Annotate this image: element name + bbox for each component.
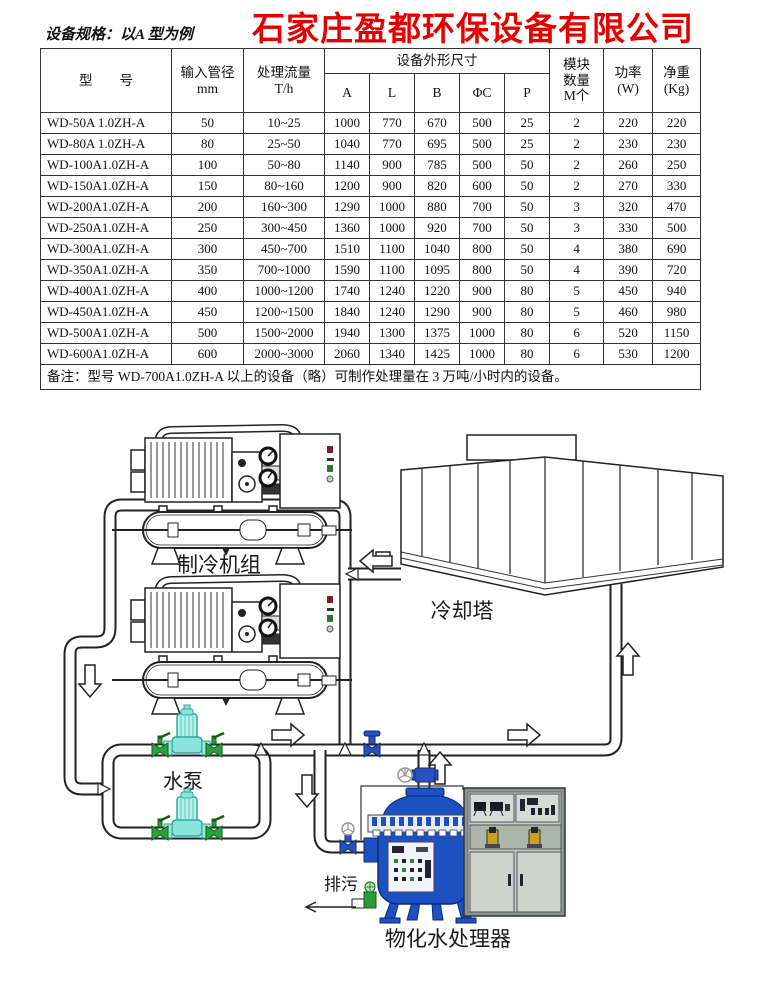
cabinet-door — [470, 852, 514, 912]
cooling-tower-top-box — [467, 435, 576, 460]
table-cell: 230 — [653, 134, 701, 155]
model-cell: WD-450A1.0ZH-A — [41, 302, 172, 323]
table-cell: 980 — [653, 302, 701, 323]
chiller-unit-2 — [112, 578, 352, 714]
table-cell: 1425 — [415, 344, 460, 365]
table-cell: 4 — [550, 239, 604, 260]
table-cell: 50~80 — [244, 155, 325, 176]
relay-device — [485, 827, 500, 848]
table-cell: 2 — [550, 155, 604, 176]
table-cell: 450 — [604, 281, 653, 302]
flow-arrow-down-icon — [79, 665, 101, 697]
table-cell: 900 — [460, 281, 505, 302]
table-cell: 300 — [172, 239, 244, 260]
col-header-A: A — [325, 74, 370, 113]
table-cell: 4 — [550, 260, 604, 281]
table-cell: 1200~1500 — [244, 302, 325, 323]
label-drain: 排污 — [324, 875, 358, 894]
table-cell: 820 — [415, 176, 460, 197]
model-cell: WD-350A1.0ZH-A — [41, 260, 172, 281]
col-header-dimensions: 设备外形尺寸 — [325, 49, 550, 74]
system-diagram: 制冷机组 冷却塔 水泵 排污 物化水处理器 — [0, 406, 763, 971]
table-cell: 330 — [604, 218, 653, 239]
table-cell: 260 — [604, 155, 653, 176]
table-cell: 500 — [460, 134, 505, 155]
table-cell: 700~1000 — [244, 260, 325, 281]
model-cell: WD-50A 1.0ZH-A — [41, 113, 172, 134]
table-cell: 1100 — [370, 239, 415, 260]
handwheel-icon — [342, 823, 354, 835]
door-handle — [520, 874, 523, 886]
model-cell: WD-300A1.0ZH-A — [41, 239, 172, 260]
chiller-unit-1 — [112, 428, 352, 564]
relay-shelf — [470, 825, 561, 849]
table-row: WD-50A 1.0ZH-A5010~251000770670500252220… — [41, 113, 701, 134]
chiller-fin-block — [145, 438, 232, 502]
processor-outlet-valve — [398, 768, 438, 782]
table-row: WD-450A1.0ZH-A4501200~150018401240129090… — [41, 302, 701, 323]
cabinet-door — [517, 852, 561, 912]
table-cell: 200 — [172, 197, 244, 218]
table-cell: 770 — [370, 113, 415, 134]
table-cell: 320 — [604, 197, 653, 218]
table-cell: 1510 — [325, 239, 370, 260]
table-cell: 720 — [653, 260, 701, 281]
table-cell: 3 — [550, 197, 604, 218]
table-cell: 800 — [460, 239, 505, 260]
table-cell: 500 — [460, 155, 505, 176]
table-cell: 1000 — [370, 197, 415, 218]
table-cell: 1740 — [325, 281, 370, 302]
table-row: WD-200A1.0ZH-A200160~3001290100088070050… — [41, 197, 701, 218]
table-cell: 470 — [653, 197, 701, 218]
control-cabinet — [464, 788, 565, 916]
chiller-foot — [152, 548, 180, 564]
table-cell: 5 — [550, 281, 604, 302]
table-cell: 2 — [550, 134, 604, 155]
table-cell: 900 — [370, 176, 415, 197]
table-cell: 1200 — [653, 344, 701, 365]
chiller-foot — [276, 548, 304, 564]
table-note: 备注：型号 WD-700A1.0ZH-A 以上的设备（略）可制作处理量在 3 万… — [41, 365, 701, 390]
table-cell: 450 — [172, 302, 244, 323]
table-cell: 220 — [604, 113, 653, 134]
model-cell: WD-250A1.0ZH-A — [41, 218, 172, 239]
table-cell: 1940 — [325, 323, 370, 344]
table-cell: 80 — [505, 281, 550, 302]
table-cell: 2060 — [325, 344, 370, 365]
table-cell: 25~50 — [244, 134, 325, 155]
chiller-foot — [276, 698, 304, 714]
table-cell: 1040 — [325, 134, 370, 155]
col-header-pipe: 输入管径mm — [172, 49, 244, 113]
chiller-foot — [152, 698, 180, 714]
table-cell: 600 — [460, 176, 505, 197]
table-cell: 1040 — [415, 239, 460, 260]
indicator-light — [327, 446, 333, 453]
table-cell: 1150 — [653, 323, 701, 344]
table-cell: 2 — [550, 176, 604, 197]
label-chiller: 制冷机组 — [177, 554, 261, 577]
relay-device — [527, 827, 542, 848]
table-cell: 220 — [653, 113, 701, 134]
col-header-flow: 处理流量T/h — [244, 49, 325, 113]
col-header-weight: 净重(Kg) — [653, 49, 701, 113]
table-cell: 500 — [460, 113, 505, 134]
table-cell: 2000~3000 — [244, 344, 325, 365]
table-cell: 390 — [604, 260, 653, 281]
spec-table-head: 型 号 输入管径mm 处理流量T/h 设备外形尺寸 模块数量M个 功率(W) 净… — [41, 49, 701, 113]
table-cell: 1340 — [370, 344, 415, 365]
table-cell: 1590 — [325, 260, 370, 281]
table-cell: 770 — [370, 134, 415, 155]
table-cell: 100 — [172, 155, 244, 176]
table-cell: 250 — [653, 155, 701, 176]
table-cell: 50 — [505, 218, 550, 239]
table-cell: 160~300 — [244, 197, 325, 218]
table-row: WD-400A1.0ZH-A4001000~120017401240122090… — [41, 281, 701, 302]
table-cell: 50 — [505, 155, 550, 176]
table-cell: 500 — [653, 218, 701, 239]
table-cell: 330 — [653, 176, 701, 197]
chiller-side-box — [131, 450, 145, 470]
table-cell: 80 — [505, 323, 550, 344]
processor-inlet-valve — [340, 823, 356, 854]
col-header-model: 型 号 — [41, 49, 172, 113]
indicator-light — [327, 615, 333, 622]
table-cell: 670 — [415, 113, 460, 134]
table-cell: 380 — [604, 239, 653, 260]
table-cell: 690 — [653, 239, 701, 260]
table-cell: 250 — [172, 218, 244, 239]
table-cell: 270 — [604, 176, 653, 197]
table-cell: 400 — [172, 281, 244, 302]
table-cell: 6 — [550, 344, 604, 365]
table-cell: 1220 — [415, 281, 460, 302]
indicator-light — [327, 465, 333, 472]
table-cell: 1000~1200 — [244, 281, 325, 302]
table-cell: 150 — [172, 176, 244, 197]
table-cell: 520 — [604, 323, 653, 344]
indicator-light — [327, 596, 333, 603]
table-cell: 1000 — [370, 218, 415, 239]
table-cell: 1000 — [460, 344, 505, 365]
table-cell: 1240 — [370, 302, 415, 323]
table-cell: 785 — [415, 155, 460, 176]
label-pump: 水泵 — [163, 770, 203, 793]
col-header-L: L — [370, 74, 415, 113]
table-cell: 1240 — [370, 281, 415, 302]
table-cell: 50 — [505, 260, 550, 281]
table-cell: 230 — [604, 134, 653, 155]
table-cell: 80~160 — [244, 176, 325, 197]
col-header-PhiC: ΦC — [460, 74, 505, 113]
table-cell: 695 — [415, 134, 460, 155]
table-cell: 1200 — [325, 176, 370, 197]
spec-subtitle: 设备规格：以A 型为例 — [45, 23, 193, 44]
spec-table-body: WD-50A 1.0ZH-A5010~251000770670500252220… — [41, 113, 701, 365]
col-header-module: 模块数量M个 — [550, 49, 604, 113]
table-cell: 1300 — [370, 323, 415, 344]
pump-2 — [164, 788, 210, 838]
table-cell: 50 — [505, 197, 550, 218]
note-row: 备注：型号 WD-700A1.0ZH-A 以上的设备（略）可制作处理量在 3 万… — [41, 365, 701, 390]
water-processor — [306, 788, 489, 923]
handwheel-icon — [398, 768, 412, 782]
model-cell: WD-400A1.0ZH-A — [41, 281, 172, 302]
table-cell: 1140 — [325, 155, 370, 176]
table-cell: 80 — [505, 302, 550, 323]
cooling-tower — [376, 435, 723, 595]
door-handle — [508, 874, 511, 886]
table-cell: 530 — [604, 344, 653, 365]
table-cell: 300~450 — [244, 218, 325, 239]
chiller-side-box — [131, 600, 145, 620]
col-header-P: P — [505, 74, 550, 113]
table-cell: 1500~2000 — [244, 323, 325, 344]
table-cell: 940 — [653, 281, 701, 302]
table-cell: 1360 — [325, 218, 370, 239]
table-row: WD-600A1.0ZH-A6002000~300020601340142510… — [41, 344, 701, 365]
table-cell: 25 — [505, 134, 550, 155]
table-cell: 500 — [172, 323, 244, 344]
table-cell: 1095 — [415, 260, 460, 281]
table-row: WD-500A1.0ZH-A5001500~200019401300137510… — [41, 323, 701, 344]
table-cell: 50 — [172, 113, 244, 134]
table-cell: 25 — [505, 113, 550, 134]
spec-table: 型 号 输入管径mm 处理流量T/h 设备外形尺寸 模块数量M个 功率(W) 净… — [40, 48, 701, 390]
col-header-power: 功率(W) — [604, 49, 653, 113]
table-cell: 700 — [460, 218, 505, 239]
table-cell: 920 — [415, 218, 460, 239]
table-cell: 80 — [505, 344, 550, 365]
model-cell: WD-150A1.0ZH-A — [41, 176, 172, 197]
document-header: 石家庄盈都环保设备有限公司 设备规格：以A 型为例 — [0, 0, 763, 46]
table-row: WD-80A 1.0ZH-A8025~501040770695500252230… — [41, 134, 701, 155]
processor-panel — [388, 842, 434, 892]
table-cell: 900 — [370, 155, 415, 176]
table-cell: 600 — [172, 344, 244, 365]
table-row: WD-150A1.0ZH-A15080~16012009008206005022… — [41, 176, 701, 197]
table-cell: 1375 — [415, 323, 460, 344]
flow-arrow-right-icon — [508, 724, 540, 746]
table-cell: 50 — [505, 176, 550, 197]
table-cell: 3 — [550, 218, 604, 239]
table-cell: 1100 — [370, 260, 415, 281]
table-cell: 6 — [550, 323, 604, 344]
table-cell: 80 — [172, 134, 244, 155]
table-cell: 350 — [172, 260, 244, 281]
table-cell: 700 — [460, 197, 505, 218]
model-cell: WD-200A1.0ZH-A — [41, 197, 172, 218]
table-row: WD-300A1.0ZH-A300450~7001510110010408005… — [41, 239, 701, 260]
model-cell: WD-80A 1.0ZH-A — [41, 134, 172, 155]
label-processor: 物化水处理器 — [385, 928, 511, 951]
table-cell: 5 — [550, 302, 604, 323]
table-cell: 2 — [550, 113, 604, 134]
drain-valve — [364, 892, 376, 908]
table-row: WD-100A1.0ZH-A10050~80114090078550050226… — [41, 155, 701, 176]
table-cell: 50 — [505, 239, 550, 260]
flow-diagram-svg: 制冷机组 冷却塔 水泵 排污 物化水处理器 — [0, 406, 763, 966]
flow-arrow-right-icon — [272, 724, 304, 746]
table-cell: 1290 — [325, 197, 370, 218]
table-cell: 460 — [604, 302, 653, 323]
cooling-tower-body — [401, 457, 723, 595]
table-row: WD-350A1.0ZH-A350700~1000159011001095800… — [41, 260, 701, 281]
table-cell: 1840 — [325, 302, 370, 323]
table-row: WD-250A1.0ZH-A250300~4501360100092070050… — [41, 218, 701, 239]
table-cell: 1000 — [460, 323, 505, 344]
table-cell: 900 — [460, 302, 505, 323]
table-cell: 880 — [415, 197, 460, 218]
chiller-fin-block — [145, 588, 232, 652]
model-cell: WD-500A1.0ZH-A — [41, 323, 172, 344]
table-cell: 450~700 — [244, 239, 325, 260]
company-title: 石家庄盈都环保设备有限公司 — [252, 2, 694, 50]
col-header-B: B — [415, 74, 460, 113]
table-cell: 1000 — [325, 113, 370, 134]
table-cell: 800 — [460, 260, 505, 281]
model-cell: WD-100A1.0ZH-A — [41, 155, 172, 176]
model-cell: WD-600A1.0ZH-A — [41, 344, 172, 365]
table-cell: 10~25 — [244, 113, 325, 134]
table-cell: 1290 — [415, 302, 460, 323]
label-cooling-tower: 冷却塔 — [431, 600, 494, 623]
document-page: 石家庄盈都环保设备有限公司 设备规格：以A 型为例 型 号 输入管径mm 处理流… — [0, 0, 763, 1006]
